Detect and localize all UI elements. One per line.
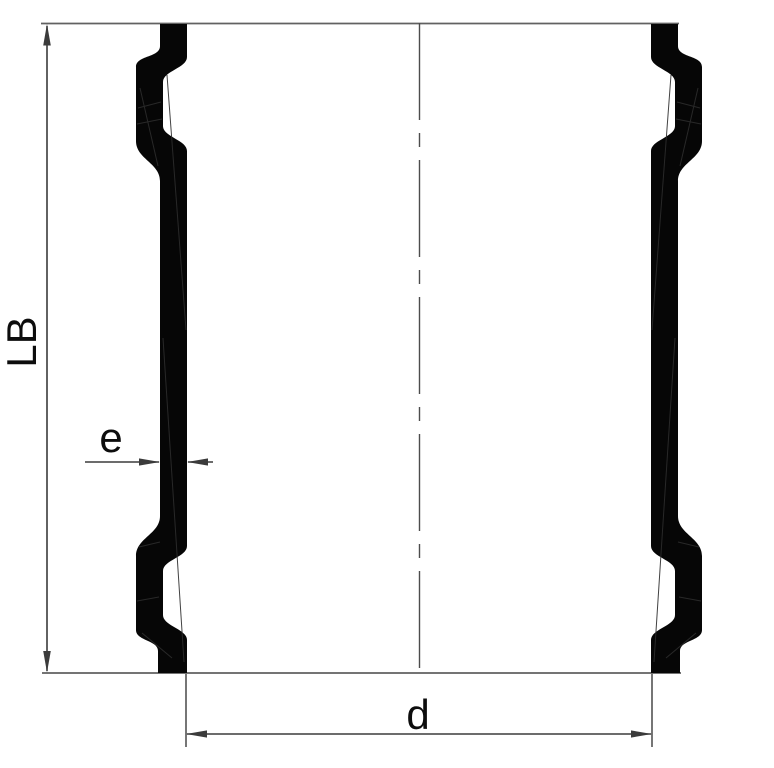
e-label: e	[99, 414, 122, 461]
technical-drawing-canvas: LB e d	[0, 0, 774, 768]
lb-label: LB	[0, 316, 45, 367]
d-label: d	[406, 691, 429, 738]
coupling-cross-section-drawing: LB e d	[0, 0, 774, 768]
